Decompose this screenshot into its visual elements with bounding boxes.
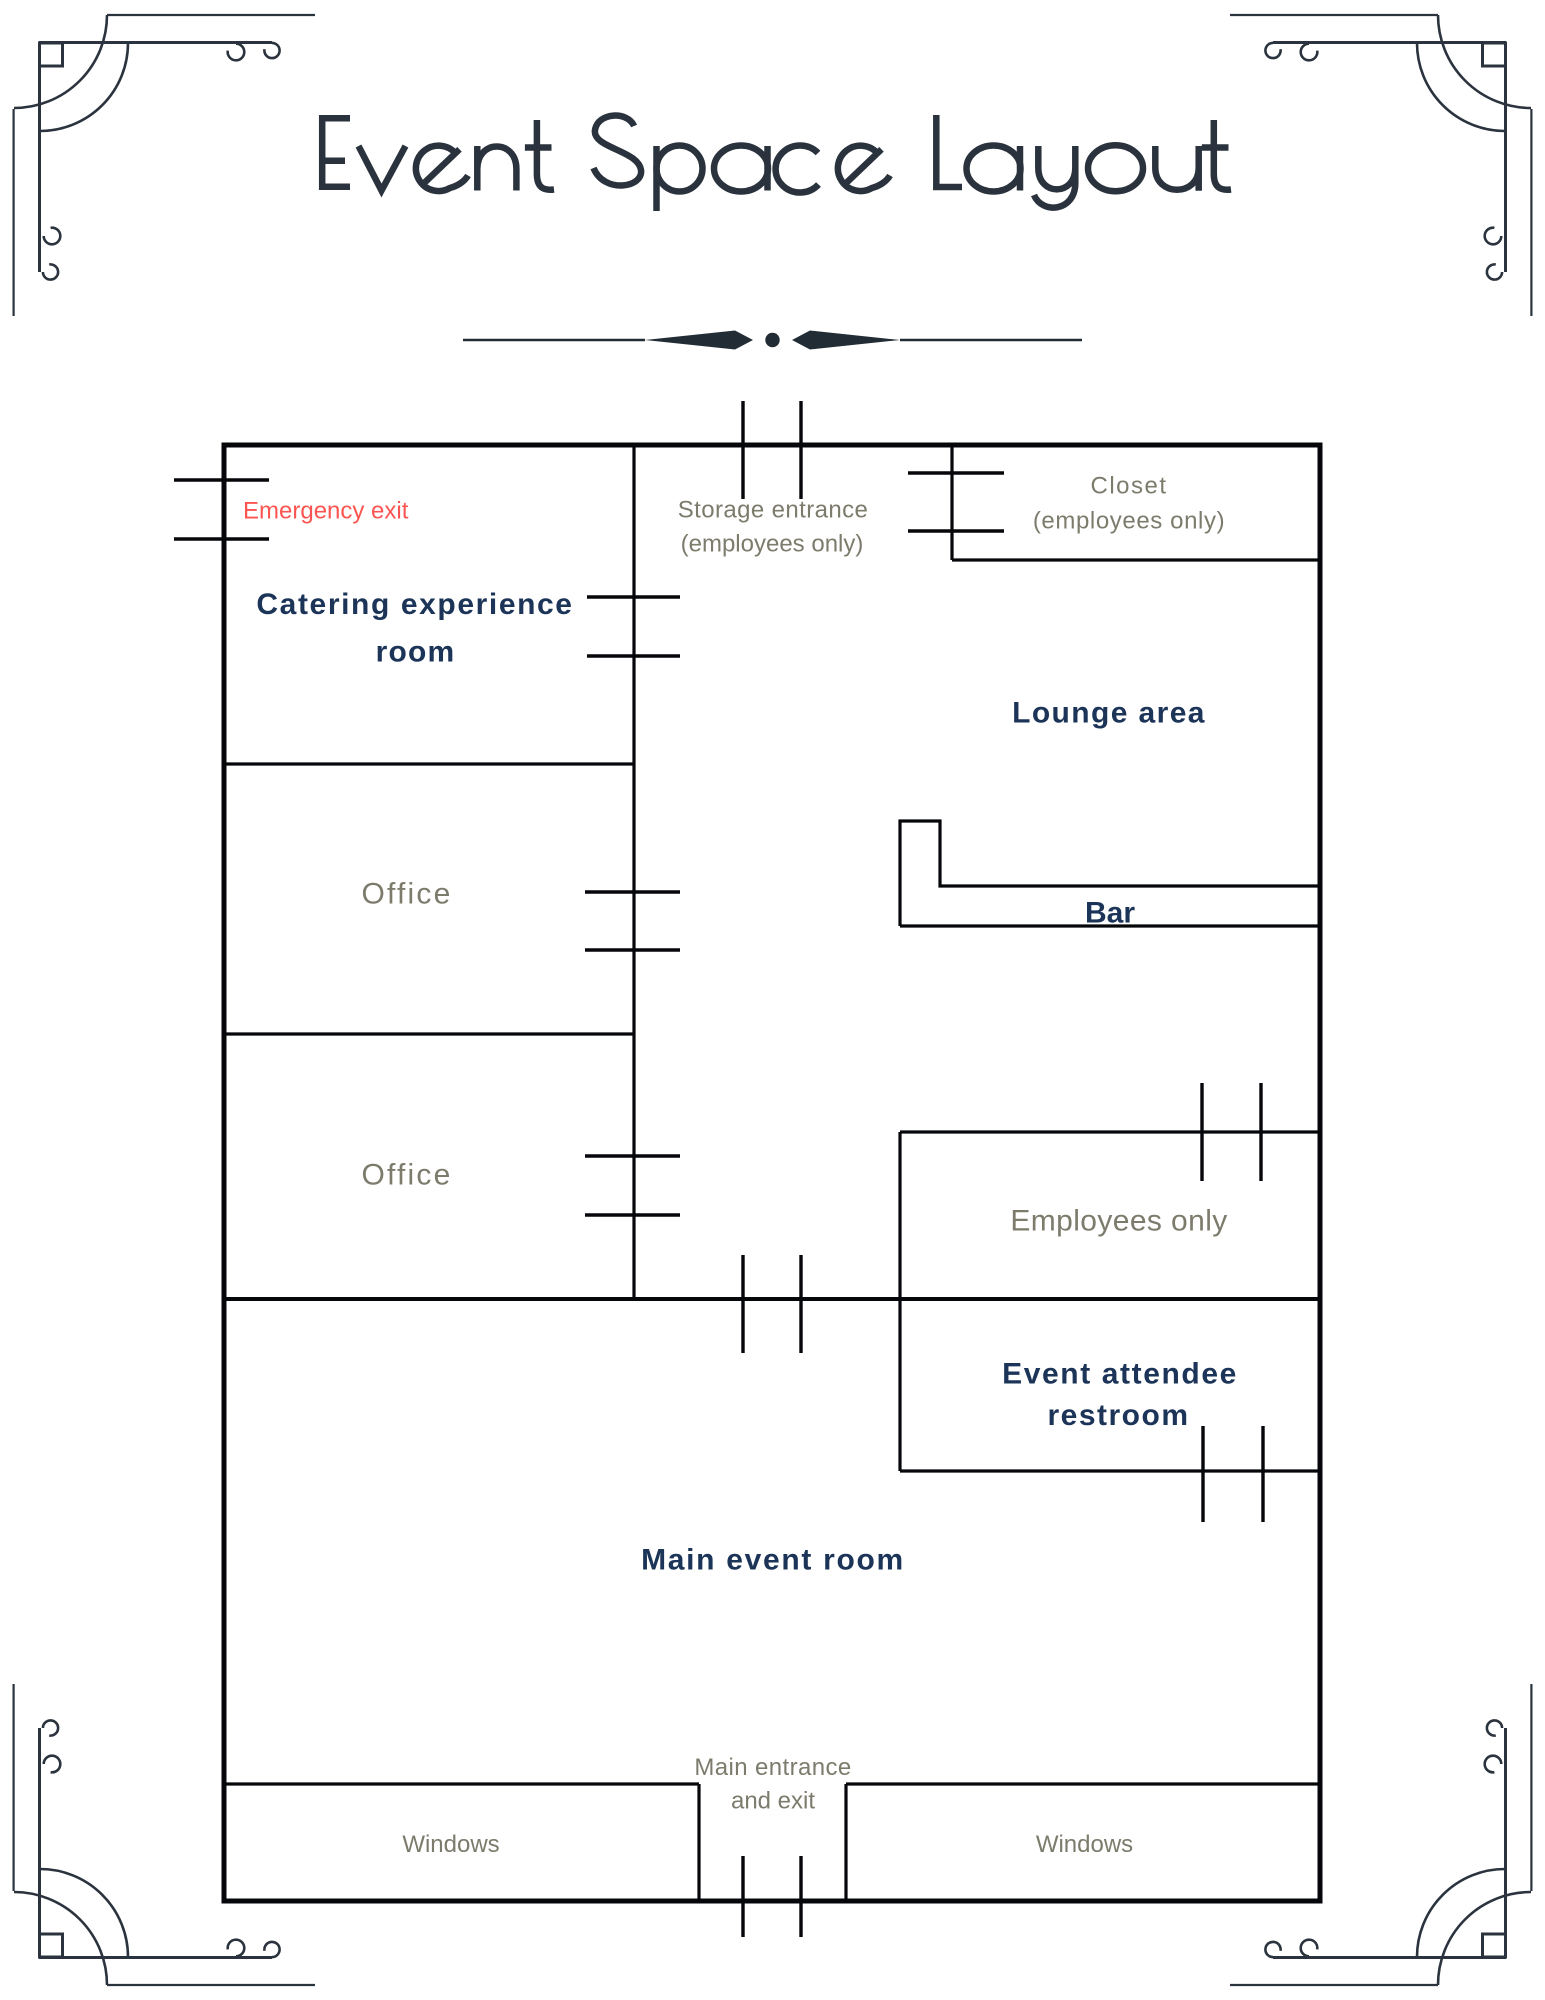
svg-text:Catering experience: Catering experience: [256, 588, 573, 621]
svg-text:(employees only): (employees only): [681, 531, 864, 558]
svg-text:Main event room: Main event room: [641, 1544, 905, 1577]
svg-text:Emergency exit: Emergency exit: [243, 497, 409, 524]
svg-text:room: room: [376, 636, 456, 669]
svg-text:Lounge area: Lounge area: [1012, 697, 1206, 730]
svg-text:Event attendee: Event attendee: [1002, 1358, 1238, 1391]
svg-text:Employees only: Employees only: [1010, 1205, 1227, 1238]
svg-text:Closet: Closet: [1090, 473, 1167, 500]
svg-text:(employees only): (employees only): [1033, 508, 1225, 535]
svg-text:and exit: and exit: [731, 1787, 815, 1814]
svg-text:Office: Office: [361, 878, 452, 911]
svg-text:Storage entrance: Storage entrance: [678, 497, 869, 524]
svg-text:Bar: Bar: [1085, 896, 1135, 929]
svg-text:Office: Office: [361, 1159, 452, 1192]
svg-text:Windows: Windows: [1036, 1831, 1133, 1858]
svg-text:Main entrance: Main entrance: [694, 1754, 851, 1781]
svg-text:restroom: restroom: [1047, 1399, 1189, 1432]
svg-text:Windows: Windows: [402, 1831, 499, 1858]
